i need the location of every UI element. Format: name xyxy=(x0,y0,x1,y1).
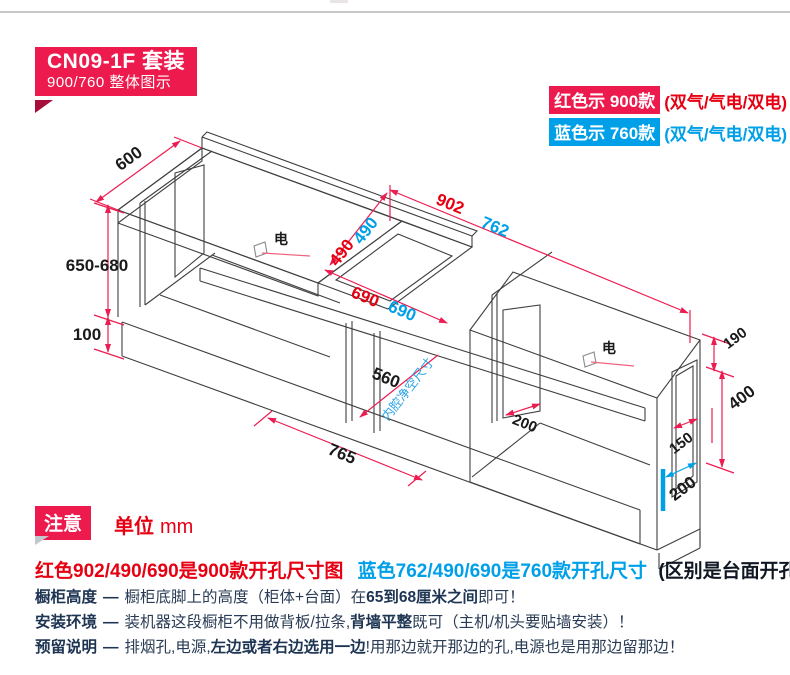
headline-900-red: 红色902/490/690是900款开孔尺寸图 xyxy=(35,561,343,582)
dim-side-hole-label: 200 xyxy=(510,411,540,436)
note-dash: — xyxy=(103,614,119,631)
note-row-install-env: 安装环境—装机器这段橱柜不用做背板/拉条,背墙平整既可（主机/机头要贴墙安装）！ xyxy=(35,610,684,635)
note-text: 既可（主机/机头要贴墙安装）！ xyxy=(412,614,633,631)
model-badge-fold xyxy=(35,100,53,113)
note-bold-text: 左边或者右边选用一边 xyxy=(211,639,366,656)
note-bold-text: 65到68厘米之间 xyxy=(366,589,478,606)
outlet-leader-lines xyxy=(262,253,634,366)
dim-toe-kick-label: 100 xyxy=(73,325,101,344)
dim-hole-width-label: 150 xyxy=(666,429,696,458)
note-text: 即可！ xyxy=(478,589,525,606)
notice-badge-fold xyxy=(35,536,49,545)
note-text: 装机器这段橱柜不用做背板/拉条, xyxy=(125,614,351,631)
note-dash: — xyxy=(103,639,119,656)
dim-cutout-900-label: 902 xyxy=(433,190,466,218)
notice-badge: 注意 xyxy=(35,506,91,540)
electric-label-right: 电 xyxy=(602,340,616,356)
dim-cutout-760-label: 762 xyxy=(478,213,511,241)
note-text: 橱柜底脚上的高度（柜体+台面）在 xyxy=(125,589,367,606)
cutout-size-headline: 红色902/490/690是900款开孔尺寸图 蓝色762/490/690是76… xyxy=(35,556,790,583)
unit-label: 单位 xyxy=(114,516,154,538)
cabinet-diagram-svg: 电 电 600 650-680 100 902 762 490 490 690 … xyxy=(0,125,790,575)
note-bold-text: 背墙平整 xyxy=(350,614,412,631)
dim-bottom-offset-label: 200 xyxy=(666,472,700,504)
dim-depth-760-label: 490 xyxy=(349,214,381,248)
model-name: CN09-1F 套装 xyxy=(47,50,185,74)
note-text: 排烟孔,电源, xyxy=(125,639,211,656)
installation-notes: 橱柜高度—橱柜底脚上的高度（柜体+台面）在65到68厘米之间即可！ 安装环境—装… xyxy=(35,585,684,660)
model-badge: CN09-1F 套装 900/760 整体图示 xyxy=(35,47,197,96)
model-subtitle: 900/760 整体图示 xyxy=(47,74,185,91)
note-dash: — xyxy=(103,589,119,606)
note-label: 预留说明 xyxy=(35,639,97,656)
legend-row-900: 红色示 900款 (双气/气电/双电) xyxy=(549,86,787,114)
note-label: 橱柜高度 xyxy=(35,589,97,606)
headline-tail: (区别是台面开孔尺寸不同) xyxy=(658,561,790,582)
unit-value: mm xyxy=(160,516,193,538)
note-label: 安装环境 xyxy=(35,614,97,631)
top-divider-line xyxy=(0,11,790,13)
unit-note: 单位mm xyxy=(114,510,193,539)
inner-clearance-note: 内腔净空尺寸 xyxy=(378,355,436,423)
legend-suffix-900: (双气/气电/双电) xyxy=(664,88,787,113)
dim-top-offset-label: 190 xyxy=(720,324,750,353)
electric-label-left: 电 xyxy=(274,231,288,247)
legend-chip-900: 红色示 900款 xyxy=(549,86,660,114)
dim-inner-900-label: 690 xyxy=(348,283,382,312)
dim-front-width-label: 765 xyxy=(325,440,358,468)
dim-side-height-label: 400 xyxy=(725,381,759,413)
scan-artifact xyxy=(330,0,348,3)
headline-760-blue: 蓝色762/490/690是760款开孔尺寸 xyxy=(358,561,647,582)
note-row-cabinet-height: 橱柜高度—橱柜底脚上的高度（柜体+台面）在65到68厘米之间即可！ xyxy=(35,585,684,610)
dim-cabinet-height-label: 650-680 xyxy=(66,256,128,275)
note-row-reserved: 预留说明—排烟孔,电源,左边或者右边选用一边!用那边就开那边的孔,电源也是用那边… xyxy=(35,635,684,660)
dim-inner-760-label: 690 xyxy=(385,297,419,326)
note-text: !用那边就开那边的孔,电源也是用那边留那边！ xyxy=(366,639,685,656)
